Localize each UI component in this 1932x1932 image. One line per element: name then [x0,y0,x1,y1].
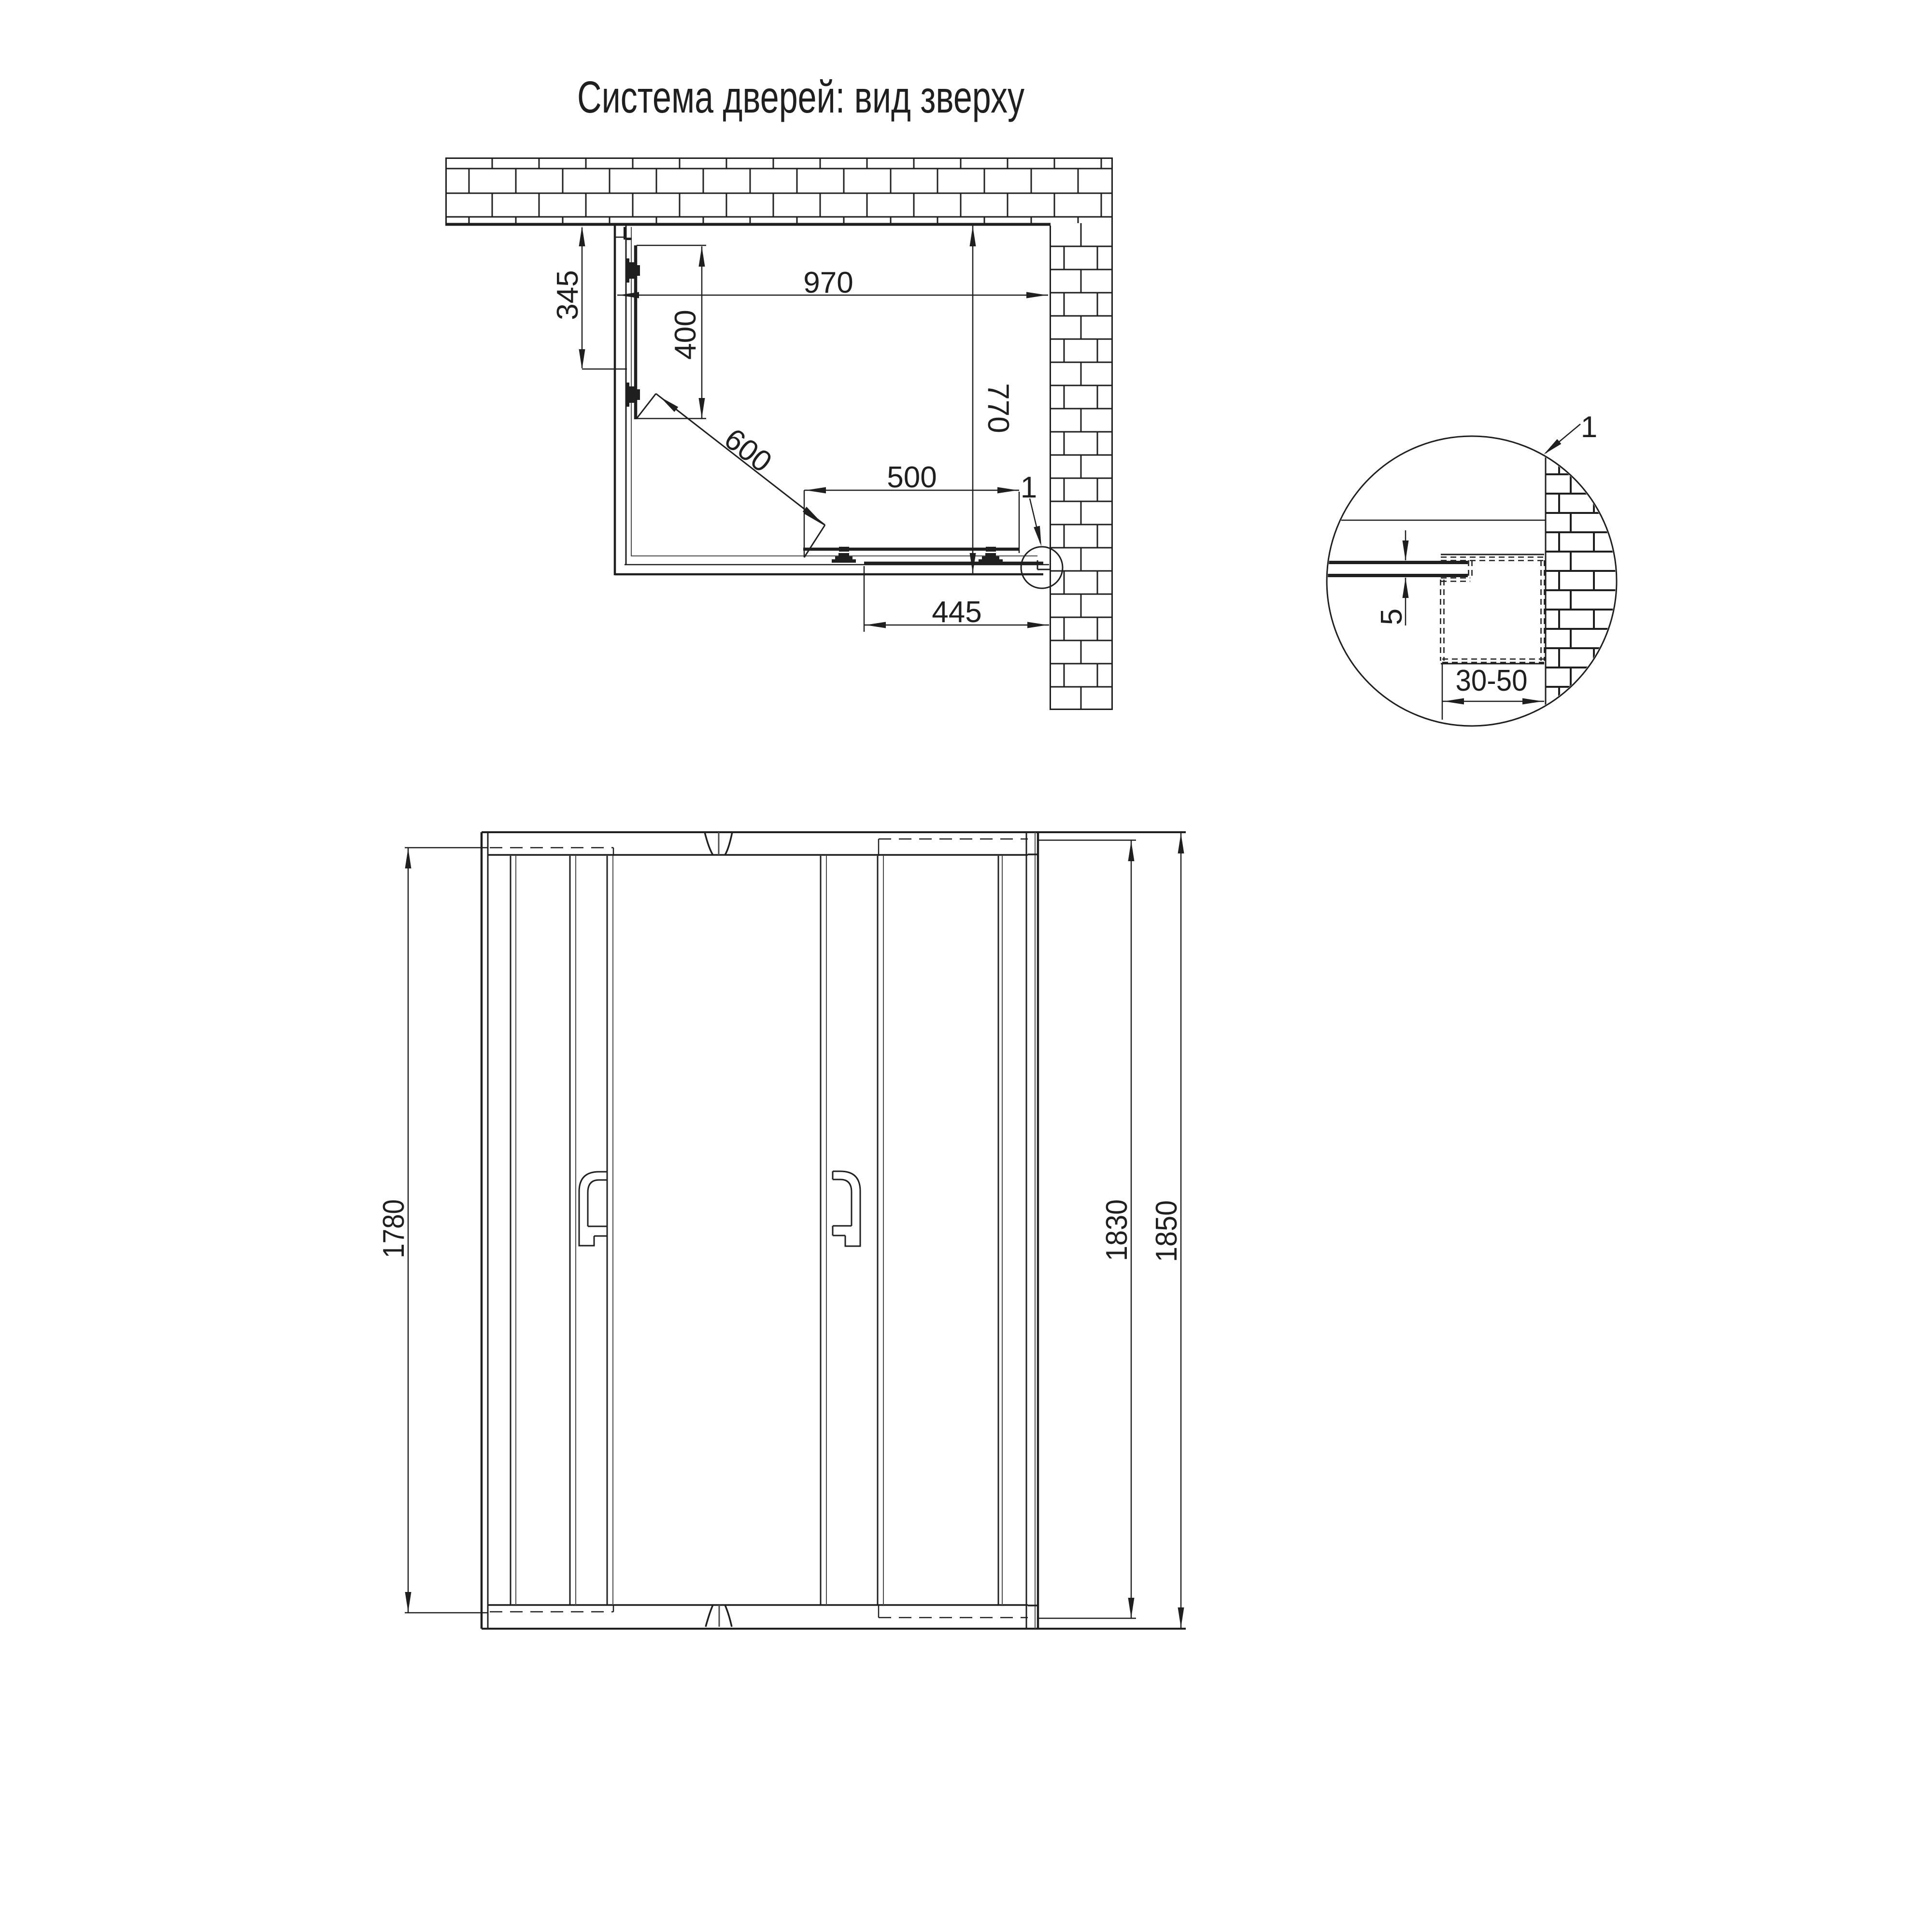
svg-text:30-50: 30-50 [1456,664,1528,697]
svg-text:500: 500 [887,461,937,494]
svg-text:770: 770 [981,383,1015,433]
svg-text:Система дверей: вид зверху: Система дверей: вид зверху [577,72,1024,122]
svg-text:1780: 1780 [377,1199,411,1258]
svg-text:400: 400 [669,310,702,359]
svg-text:1: 1 [1021,471,1037,504]
svg-text:445: 445 [932,596,981,629]
svg-text:5: 5 [1375,609,1408,625]
svg-text:970: 970 [803,266,853,299]
svg-text:1: 1 [1581,411,1597,444]
svg-text:1830: 1830 [1100,1199,1134,1261]
svg-text:1850: 1850 [1150,1200,1183,1262]
svg-text:345: 345 [551,270,584,320]
